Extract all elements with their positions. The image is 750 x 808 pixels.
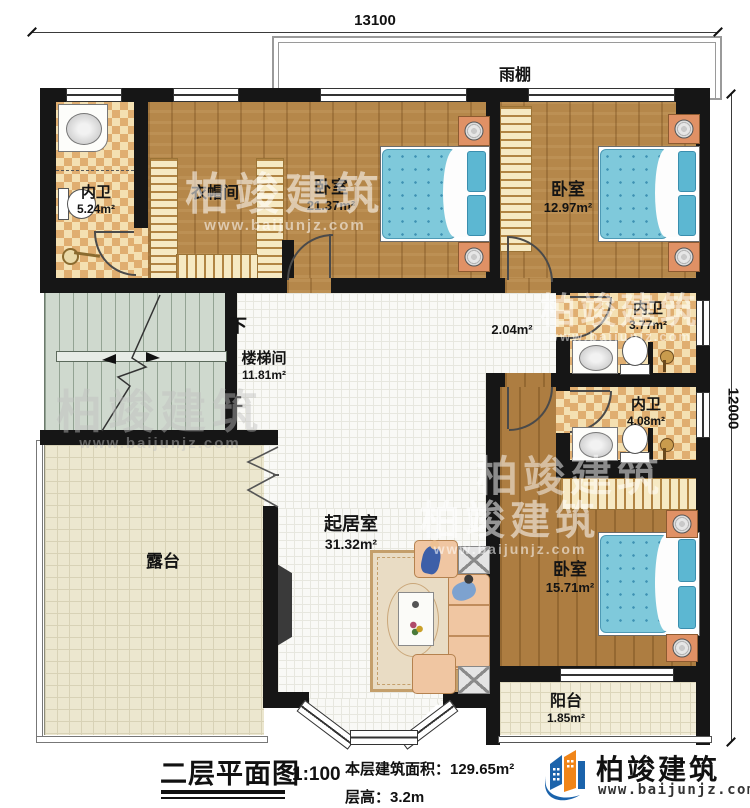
window xyxy=(528,88,675,102)
room-area: 11.81m² xyxy=(214,368,314,382)
room-area: 3.77m² xyxy=(600,318,696,332)
terrace-folding-door-icon xyxy=(245,445,279,509)
balcony-sliding-window xyxy=(560,668,674,682)
hall-area-label: 2.04m² xyxy=(477,322,547,338)
bed-icon xyxy=(598,146,700,242)
window xyxy=(66,88,122,102)
room-name: 内卫 xyxy=(58,184,134,202)
room-label-bath-low: 内卫 4.08m² xyxy=(598,396,694,428)
bedroom-low-wardrobe xyxy=(560,478,698,510)
doorway xyxy=(505,373,551,387)
coffee-table-icon xyxy=(398,592,434,646)
sink-icon xyxy=(58,104,108,152)
room-label-living: 起居室 31.32m² xyxy=(296,514,406,552)
top-dimension-value: 13100 xyxy=(345,12,405,29)
room-name: 卧室 xyxy=(291,178,371,198)
room-label-bedroom-low: 卧室 15.71m² xyxy=(520,560,620,596)
side-table-icon xyxy=(458,546,490,574)
doorway xyxy=(287,278,331,293)
wall-under-bedrooms xyxy=(40,278,486,293)
floorplan-page: { "dimensions": { "top_width": "13100", … xyxy=(0,0,750,808)
door-leaf xyxy=(570,390,610,392)
nightstand-icon xyxy=(668,114,700,144)
stair-break-line-icon xyxy=(88,292,170,434)
room-area: 12.97m² xyxy=(528,200,608,216)
bed-icon xyxy=(380,146,490,242)
shower-stem xyxy=(663,360,666,372)
room-label-bedroom-right: 卧室 12.97m² xyxy=(528,180,608,216)
wall-living-left xyxy=(263,506,278,696)
stair-up-label: 上 xyxy=(222,390,246,412)
door-leaf xyxy=(507,387,509,429)
cloakroom-wardrobe-right xyxy=(256,158,284,280)
room-name: 阳台 xyxy=(516,692,616,711)
door-leaf xyxy=(329,234,331,278)
brand-website: www.baijunjz.com xyxy=(598,782,746,798)
sink-icon xyxy=(572,427,618,461)
room-label-bedroom-top: 卧室 21.37m² xyxy=(291,178,371,214)
wall-left xyxy=(40,88,56,293)
floor-height-text: 层高：3.2m xyxy=(345,786,505,807)
room-name: 卧室 xyxy=(528,180,608,200)
balcony-railing xyxy=(498,736,712,743)
stair-down-label: 下 xyxy=(226,316,250,338)
tv-icon xyxy=(278,562,292,648)
legend-row: 二层平面图 1:100 本层建筑面积：129.65m² 层高：3.2m 柏竣建筑… xyxy=(0,748,750,808)
room-label-cloakroom: 衣帽间 xyxy=(165,184,265,203)
cloakroom-wardrobe-left xyxy=(150,158,178,280)
cloakroom-wardrobe-bottom xyxy=(176,254,258,280)
room-area: 1.85m² xyxy=(516,711,616,725)
canopy-label: 雨棚 xyxy=(480,66,550,85)
terrace-floor xyxy=(44,445,264,735)
title-underline xyxy=(161,790,285,794)
toilet-icon xyxy=(622,336,648,366)
brand-logo-icon xyxy=(540,748,592,804)
nightstand-icon xyxy=(458,116,490,146)
shower-stem xyxy=(663,448,666,460)
nightstand-icon xyxy=(458,242,490,272)
window xyxy=(696,300,710,346)
doorway xyxy=(556,295,570,337)
armchair-icon xyxy=(412,654,456,694)
nightstand-icon xyxy=(666,634,698,662)
sink-icon xyxy=(572,340,618,374)
nightstand-icon xyxy=(666,510,698,538)
window xyxy=(320,88,467,102)
bedroom-right-wardrobe xyxy=(500,106,532,252)
room-area: 5.24m² xyxy=(58,202,134,216)
door-leaf xyxy=(94,231,134,233)
window xyxy=(173,88,239,102)
room-name: 楼梯间 xyxy=(214,350,314,368)
room-label-stairwell: 楼梯间 11.81m² xyxy=(214,350,314,382)
room-name: 内卫 xyxy=(598,396,694,414)
shower-curtain-line xyxy=(56,170,134,171)
title-underline xyxy=(161,797,285,799)
toilet-icon xyxy=(622,424,648,454)
room-area: 4.08m² xyxy=(598,414,694,428)
room-name: 卧室 xyxy=(520,560,620,580)
room-label-terrace: 露台 xyxy=(123,552,203,572)
window xyxy=(696,392,710,438)
room-name: 起居室 xyxy=(296,514,406,536)
terrace-railing xyxy=(36,736,268,743)
room-area: 31.32m² xyxy=(296,536,406,553)
right-dimension-value: 12000 xyxy=(725,379,742,439)
floor-area-text: 本层建筑面积：129.65m² xyxy=(345,758,545,779)
room-area: 15.71m² xyxy=(520,580,620,596)
door-leaf xyxy=(570,296,610,298)
doorway xyxy=(556,391,570,433)
room-label-bath-top: 内卫 5.24m² xyxy=(58,184,134,216)
doorway xyxy=(134,228,148,278)
door-leaf xyxy=(507,236,509,280)
bay-window-front xyxy=(350,730,418,745)
room-label-balcony: 阳台 1.85m² xyxy=(516,692,616,726)
room-area: 21.37m² xyxy=(291,198,371,214)
top-dimension-line xyxy=(32,32,718,33)
side-table-icon xyxy=(458,666,490,694)
nightstand-icon xyxy=(668,242,700,272)
room-name: 内卫 xyxy=(600,300,696,318)
terrace-railing xyxy=(36,440,43,742)
room-label-bath-mid: 内卫 3.77m² xyxy=(600,300,696,332)
